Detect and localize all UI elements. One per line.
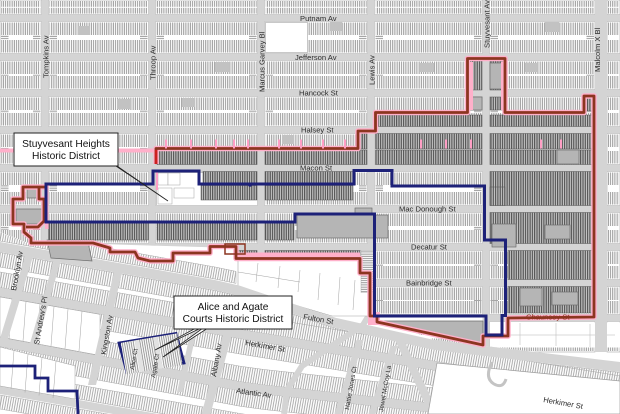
svg-text:Stuyvesant Av: Stuyvesant Av [483,0,492,48]
svg-text:Alice and Agate: Alice and Agate [198,302,269,313]
svg-text:Tompkins Av: Tompkins Av [42,35,51,78]
svg-text:Halsey St: Halsey St [301,126,334,135]
svg-text:Historic District: Historic District [32,151,100,162]
svg-text:Malcolm X Bl: Malcolm X Bl [593,27,602,72]
svg-text:Stuyvesant Heights: Stuyvesant Heights [22,139,110,150]
svg-text:Bainbridge St: Bainbridge St [406,279,452,288]
svg-text:Jefferson Av: Jefferson Av [295,53,337,62]
svg-text:Macon St: Macon St [300,164,333,173]
svg-text:Marcus Garvey Bl: Marcus Garvey Bl [258,31,267,92]
svg-text:Hancock St: Hancock St [299,89,339,98]
svg-text:Chauncey St: Chauncey St [526,313,570,322]
svg-text:Decatur St: Decatur St [411,243,448,252]
svg-text:Mac Donough St: Mac Donough St [399,205,456,214]
svg-text:Courts Historic District: Courts Historic District [183,314,284,325]
svg-text:Throop Av: Throop Av [149,45,158,80]
svg-text:Lewis Av: Lewis Av [368,55,377,85]
svg-text:Putnam Av: Putnam Av [300,14,337,23]
